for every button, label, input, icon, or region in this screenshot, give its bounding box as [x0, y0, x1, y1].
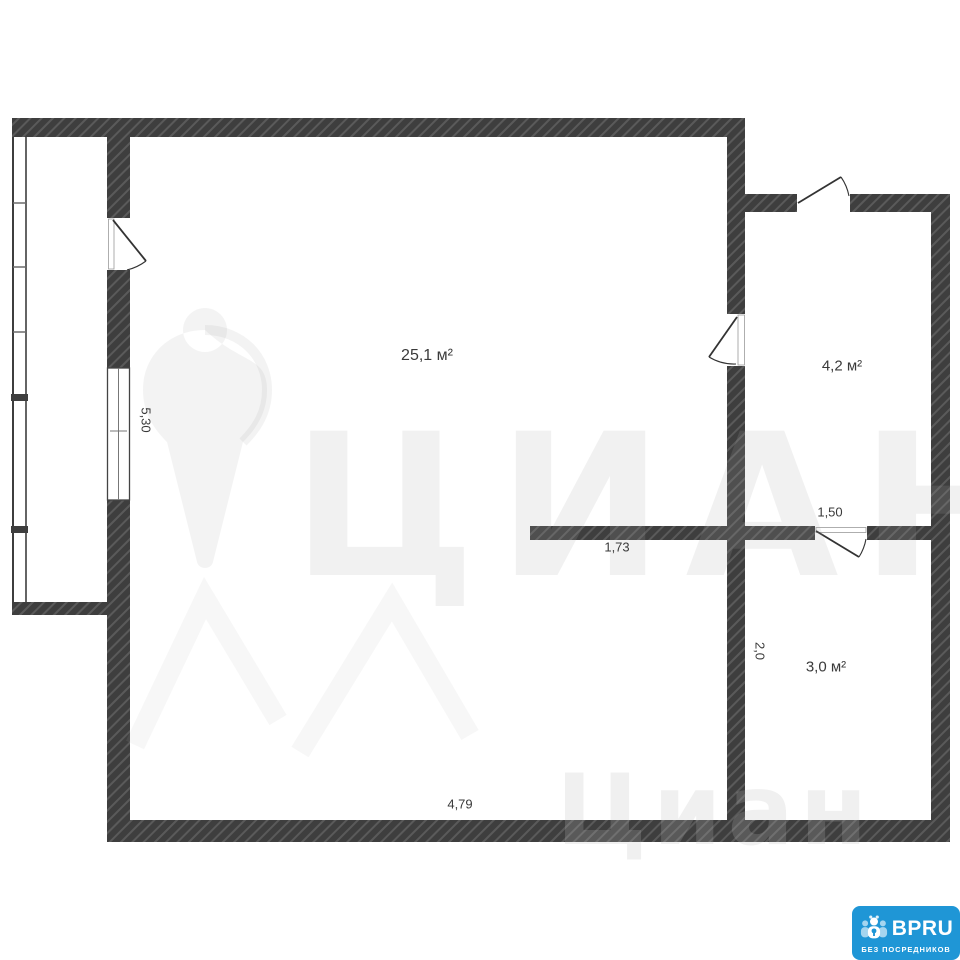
bpru-logo-badge: BPRU БЕЗ ПОСРЕДНИКОВ — [852, 906, 960, 960]
topright-room-door — [798, 177, 849, 203]
wall-topright — [850, 194, 950, 212]
wall-partition-middle — [745, 526, 815, 540]
wall-bottom — [107, 820, 950, 842]
people-lock-icon — [859, 915, 889, 943]
area-label-main-room: 25,1 м² — [401, 348, 453, 364]
bpru-logo-subtitle: БЕЗ ПОСРЕДНИКОВ — [861, 946, 950, 954]
wall-topright-stub — [745, 194, 797, 212]
wall-left-upper — [107, 137, 130, 218]
main-room-window — [108, 368, 130, 500]
wall-right-outer — [931, 212, 950, 820]
bpru-logo-title: BPRU — [892, 918, 954, 939]
wall-partition-left — [530, 526, 727, 540]
wall-center-vertical-lower — [727, 366, 745, 820]
wall-left-middle — [107, 270, 130, 368]
floorplan-image: ЦИАН Циан 25,1 м² 4,2 м² 3,0 м² 5,30 1,7… — [0, 0, 960, 960]
dimension-label-1-50: 1,50 — [817, 506, 842, 519]
area-label-bottom-right-room: 3,0 м² — [806, 660, 846, 675]
dimension-label-4-79: 4,79 — [447, 798, 472, 811]
wall-top — [12, 118, 745, 137]
area-label-top-right-room: 4,2 м² — [822, 359, 862, 374]
dimension-label-2-0: 2,0 — [754, 642, 767, 660]
wall-partition-right — [867, 526, 931, 540]
bottomright-room-door — [816, 528, 866, 558]
wall-center-vertical-upper — [727, 137, 745, 314]
balcony-window — [11, 137, 28, 602]
dimension-label-1-73: 1,73 — [604, 541, 629, 554]
dimension-label-5-30: 5,30 — [140, 407, 153, 432]
center-wall-door — [709, 315, 745, 365]
wall-left-lower — [107, 500, 130, 842]
balcony-door — [109, 219, 147, 270]
wall-balcony-bottom — [12, 602, 107, 615]
floorplan-drawing — [0, 0, 960, 960]
